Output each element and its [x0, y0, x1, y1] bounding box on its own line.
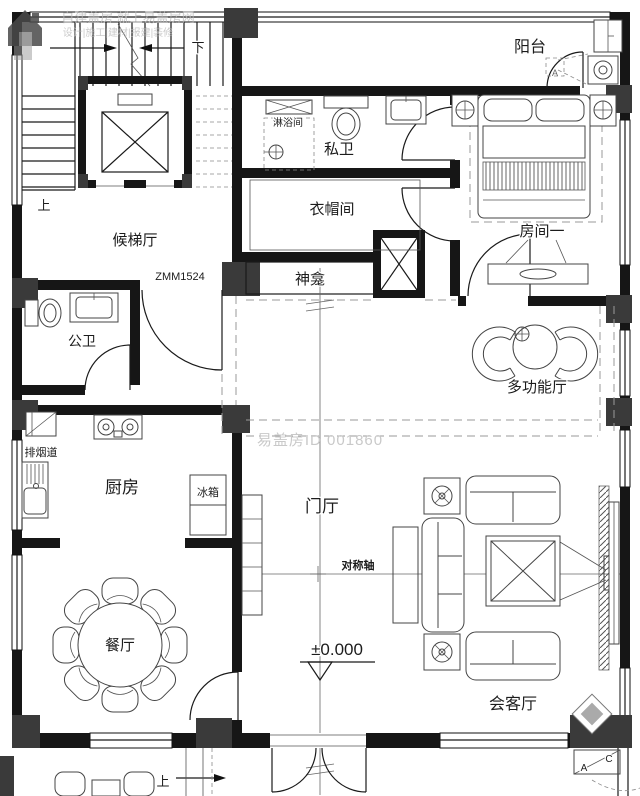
room-label-cloakroom: 衣帽间: [309, 201, 354, 218]
toilet-tank: [25, 300, 38, 326]
room-label-elevator-hall: 候梯厅: [112, 232, 157, 249]
fridge-label: 冰箱: [197, 485, 219, 499]
section-c-label: C: [605, 754, 612, 765]
stair-treads-dashed: [196, 96, 232, 187]
outdoor-table: [92, 780, 120, 796]
fan-chair: [472, 327, 515, 381]
room-label-public-bath: 公卫: [68, 333, 96, 349]
fan-chair: [555, 327, 598, 381]
entrance-up-label: 上: [156, 774, 169, 789]
stair-direction-arrows: [50, 44, 184, 52]
window-right-multifunction: [620, 330, 630, 396]
brand-watermark-line1: 自建盖房 就上易盖房网: [61, 10, 195, 25]
toilet-bowl: [39, 299, 61, 327]
room-label-bedroom: 房间一: [519, 223, 564, 240]
stairs-up-label: 上: [37, 198, 50, 213]
bed-blanket: [483, 162, 585, 190]
elevator: [78, 76, 192, 188]
bedroom-furniture: [452, 95, 616, 284]
door-elevator-hall: [142, 290, 222, 370]
stove: [94, 415, 142, 439]
section-a-label: A: [581, 763, 588, 774]
duct-shaft: [373, 230, 425, 298]
room-label-balcony: 阳台: [514, 38, 546, 56]
washing-machine: [588, 56, 618, 84]
window-left-stairs: [12, 55, 22, 205]
window-left-kitchen: [12, 440, 22, 530]
dining-chair: [53, 627, 79, 663]
room-label-reception: 会客厅: [489, 695, 537, 713]
reception-furniture: [422, 476, 619, 680]
outdoor-chair: [55, 772, 85, 796]
brand-watermark-line2: 设计|施工|建材|报建|装修: [63, 26, 173, 39]
bed: [478, 95, 590, 218]
door-public-bath: [85, 345, 130, 390]
round-table: [513, 325, 557, 369]
window-right-bedroom: [620, 120, 630, 265]
window-bottom-reception: [440, 733, 568, 748]
elevator-counterweight: [118, 94, 152, 105]
door-main-entrance: [270, 733, 366, 792]
elevation-marker: [300, 662, 375, 680]
public-bath-fixtures: [25, 293, 118, 327]
stairs-down-label: 下: [191, 40, 204, 55]
window-balcony-rail: [240, 12, 610, 22]
kitchen-fixtures: [22, 412, 226, 535]
room-label-private-bath: 私卫: [324, 141, 354, 158]
symmetry-axis-label: 对称轴: [342, 558, 375, 572]
multifunction-furniture: [472, 325, 597, 381]
window-bottom-dining: [90, 733, 172, 748]
floor-plan: 自建盖房 就上易盖房网 设计|施工|建材|报建|装修 阳台 下 上 候梯厅 ZM…: [0, 0, 640, 796]
room-label-dining: 餐厅: [105, 637, 135, 654]
door-tag-label: ZMM1524: [155, 271, 205, 283]
smoke-duct-label: 排烟道: [25, 445, 58, 459]
room-label-multifunction: 多功能厅: [507, 379, 567, 396]
dining-chair: [102, 686, 138, 712]
shoe-cabinet: [242, 495, 262, 615]
dining-chair: [102, 578, 138, 604]
balcony-section-marker-label: A: [552, 68, 558, 78]
entrance-step-arrow: [176, 748, 226, 796]
room-label-kitchen: 厨房: [105, 478, 139, 497]
console-table: [393, 527, 418, 623]
room-label-foyer: 门厅: [305, 497, 339, 516]
window-left-dining: [12, 555, 22, 650]
id-watermark: 易盖房ID 001860: [257, 432, 383, 449]
window-right-reception-top: [620, 430, 630, 487]
room-label-shower: 淋浴间: [273, 116, 303, 129]
door-dining: [190, 672, 238, 720]
outdoor-chair: [124, 772, 154, 796]
room-label-shrine: 神龛: [295, 271, 325, 288]
dresser: [488, 264, 588, 284]
elevation-label: ±0.000: [311, 640, 363, 659]
toilet-tank: [324, 96, 368, 108]
dining-chair: [161, 627, 187, 663]
sofa-long: [422, 518, 464, 632]
